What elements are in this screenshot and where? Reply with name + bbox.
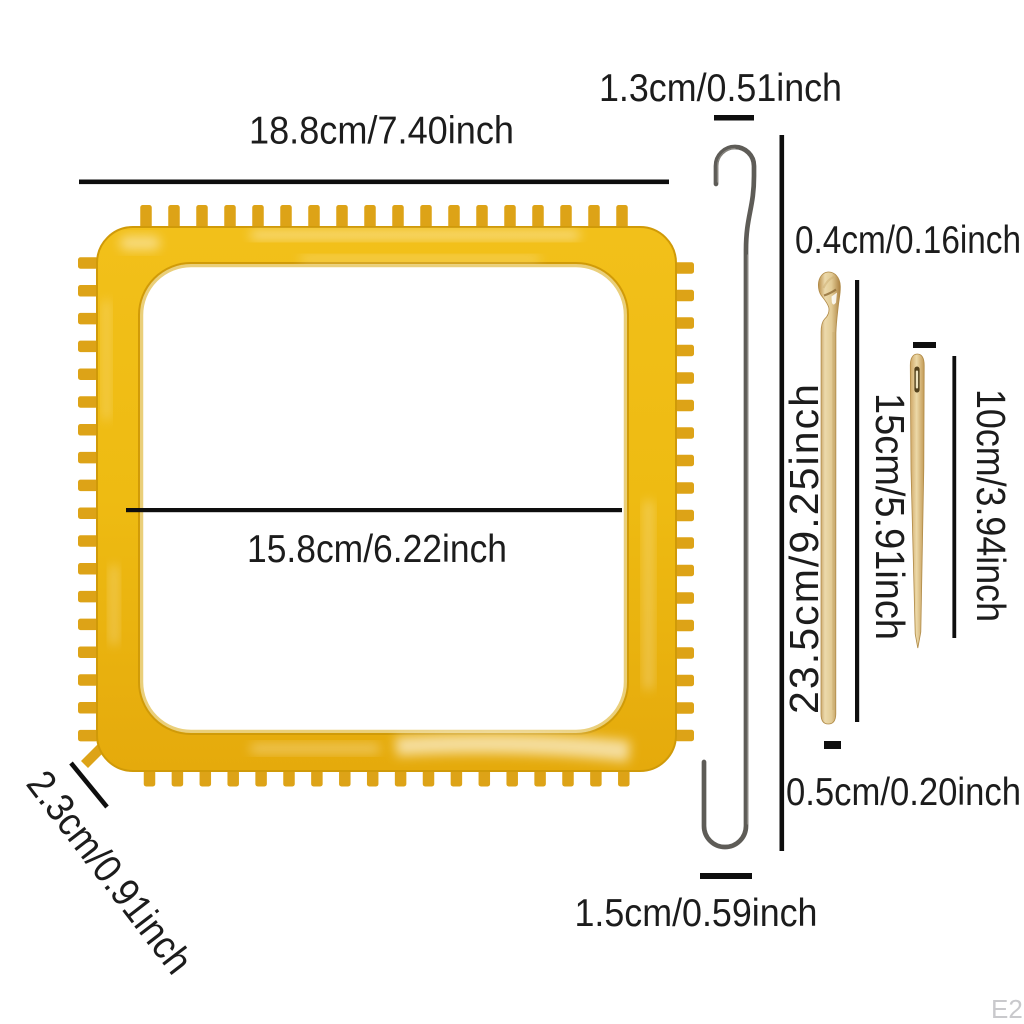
svg-text:0.4cm/0.16inch: 0.4cm/0.16inch xyxy=(795,219,1021,262)
svg-text:1.5cm/0.59inch: 1.5cm/0.59inch xyxy=(575,892,818,935)
svg-text:15cm/5.91inch: 15cm/5.91inch xyxy=(867,393,913,640)
svg-text:10cm/3.94inch: 10cm/3.94inch xyxy=(968,389,1014,622)
svg-text:18.8cm/7.40inch: 18.8cm/7.40inch xyxy=(249,110,514,153)
svg-text:15.8cm/6.22inch: 15.8cm/6.22inch xyxy=(247,528,507,571)
svg-text:E2: E2 xyxy=(991,994,1023,1024)
svg-text:23.5cm/9.25inch: 23.5cm/9.25inch xyxy=(781,384,827,714)
svg-text:0.5cm/0.20inch: 0.5cm/0.20inch xyxy=(786,771,1021,814)
svg-text:2.3cm/0.91inch: 2.3cm/0.91inch xyxy=(18,763,201,983)
svg-text:1.3cm/0.51inch: 1.3cm/0.51inch xyxy=(599,67,842,110)
